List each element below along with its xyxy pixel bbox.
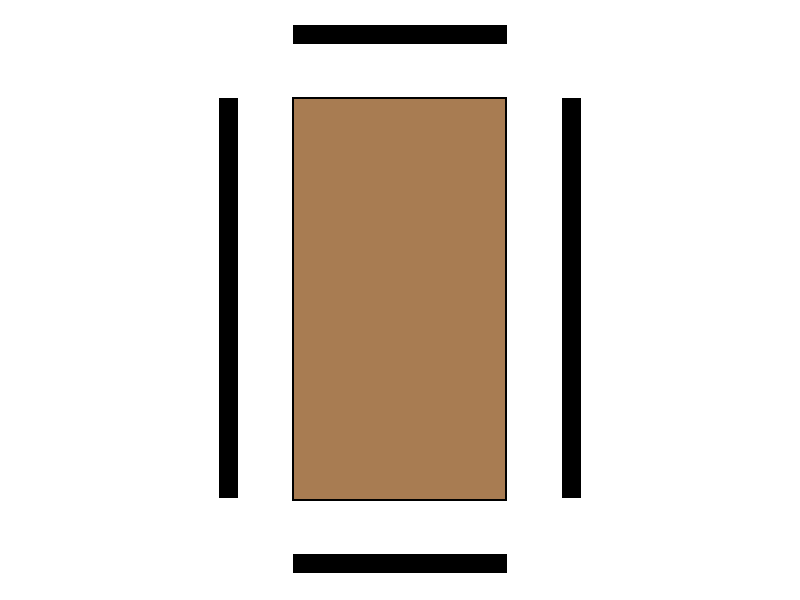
top-bar [293, 25, 507, 44]
diagram-canvas [0, 0, 800, 600]
left-bar [219, 98, 238, 498]
right-bar [562, 98, 581, 498]
bottom-bar [293, 554, 507, 573]
center-panel [292, 97, 507, 501]
